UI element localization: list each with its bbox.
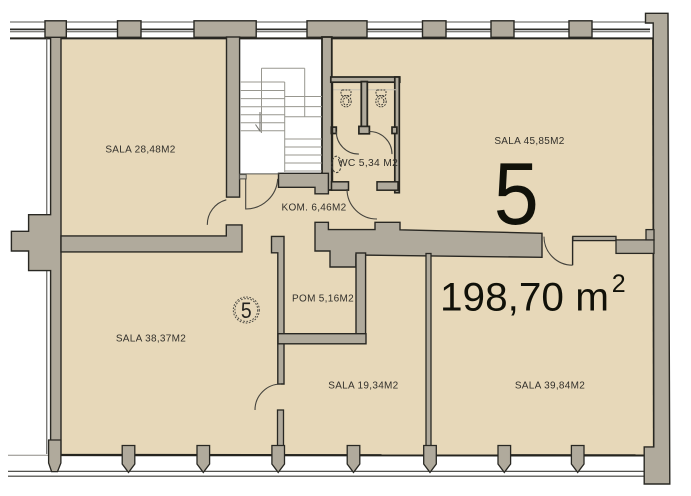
svg-text:5: 5 [494,144,539,243]
svg-text:KOM. 6,46M2: KOM. 6,46M2 [282,203,347,214]
svg-text:5: 5 [241,299,252,323]
svg-text:POM 5,16M2: POM 5,16M2 [292,294,354,305]
svg-text:SALA 38,37M2: SALA 38,37M2 [116,334,186,345]
svg-text:SALA 28,48M2: SALA 28,48M2 [105,145,175,156]
svg-text:SALA 39,84M2: SALA 39,84M2 [515,381,585,392]
svg-text:2: 2 [612,270,626,298]
svg-text:198,70 m: 198,70 m [440,276,609,320]
svg-text:SALA 19,34M2: SALA 19,34M2 [328,381,398,392]
svg-text:WC 5,34 M2: WC 5,34 M2 [338,158,398,169]
